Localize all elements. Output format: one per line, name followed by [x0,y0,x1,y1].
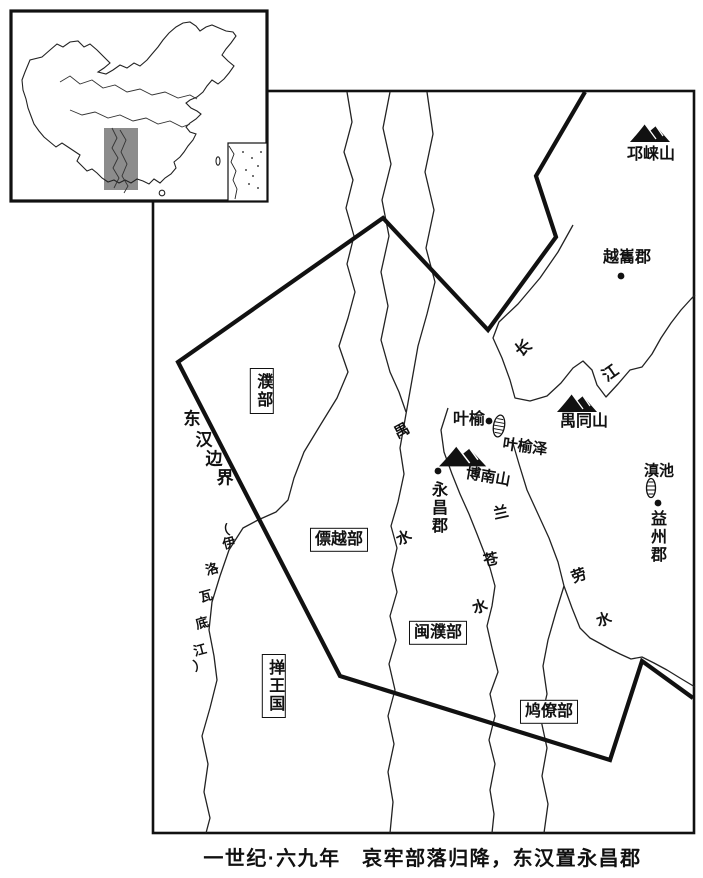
settlement-label-yongchang: 永昌郡 [429,481,445,535]
china-locator-inset [11,11,267,201]
mountain-label-yutong: 禺同山 [560,414,608,430]
settlement-label-yizhou: 益州郡 [648,510,664,564]
river-label-lancang-1: 兰 [492,504,510,522]
border-label-char-4: 界 [217,470,234,487]
settlement-dot-yongchang [435,468,442,475]
map-caption: 一世纪·六九年 哀牢部落归降，东汉置永昌郡 [150,842,695,871]
tribe-box-piaoyue: 僄越部 [310,528,368,552]
river-label-lancang-2: 苍 [482,551,500,569]
border-label-char-2: 汉 [196,432,213,449]
south-china-sea-box [228,143,267,201]
settlement-dot-yeyu [486,418,493,425]
tribe-box-jiuliao: 鸠僚部 [520,700,578,724]
border-label-char-1: 东 [184,411,201,428]
settlement-label-yuexi: 越巂郡 [603,250,651,266]
settlement-dot-yizhou [655,500,662,507]
tribe-box-pu: 濮部 [250,368,274,414]
tribe-box-shan: 掸王国 [262,654,286,718]
settlement-dot-yuexi [618,273,625,280]
tribe-box-minpu: 闽濮部 [409,621,467,645]
inset-highlight-region [104,128,138,190]
map-canvas [0,0,703,878]
lake-label-dianchi: 滇池 [644,464,674,479]
settlement-label-yeyu: 叶榆 [453,412,485,428]
historical-map-yongchang: 邛崃山 禺同山 博南山 越巂郡 叶榆 永昌郡 益州郡 叶榆泽 滇池 濮部 僄越部… [0,0,703,878]
mountain-label-qionglai: 邛崃山 [627,147,675,163]
lake-dianchi [647,479,656,498]
border-label-char-3: 边 [206,451,223,468]
